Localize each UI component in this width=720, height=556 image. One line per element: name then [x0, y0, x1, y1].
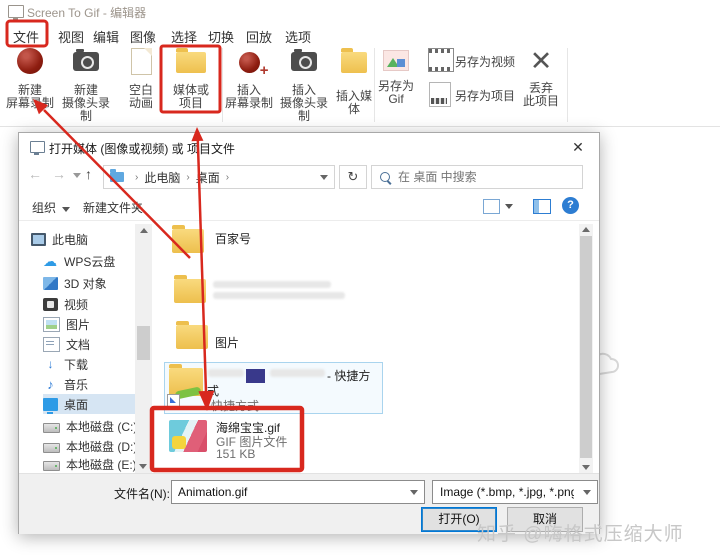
- shortcut-overlay-icon: [167, 394, 180, 407]
- new-webcam-button[interactable]: 新建摄像头录制: [58, 48, 114, 71]
- file-item-shortcut-selected[interactable]: - 快捷方 式 快捷方式: [164, 362, 383, 414]
- music-note-icon: ♪: [43, 378, 58, 391]
- sidebar-item-wps-cloud[interactable]: ☁WPS云盘: [43, 251, 115, 271]
- scrollbar-thumb[interactable]: [580, 236, 592, 458]
- save-as-video-button[interactable]: [428, 48, 452, 72]
- document-icon: [43, 337, 60, 352]
- organize-dropdown-icon: [62, 207, 70, 212]
- ribbon-separator: [222, 48, 223, 122]
- folder-icon[interactable]: [176, 325, 208, 349]
- sidebar-item-disk-d[interactable]: 本地磁盘 (D:): [43, 436, 137, 456]
- save-as-project-label[interactable]: 另存为项目: [455, 90, 517, 103]
- screentogif-app-icon: [8, 5, 24, 18]
- scroll-down-icon[interactable]: [139, 464, 147, 469]
- redacted-text: [213, 281, 331, 288]
- desktop-icon: [43, 398, 58, 411]
- watermark: 知乎 @嗨格式压缩大师: [477, 519, 684, 546]
- project-file-icon: [429, 82, 451, 107]
- scroll-down-icon[interactable]: [582, 465, 590, 470]
- up-icon[interactable]: ↑: [85, 166, 92, 182]
- redacted-block: [246, 369, 265, 383]
- refresh-button[interactable]: ↻: [339, 165, 367, 189]
- sidebar-item-this-pc[interactable]: 此电脑: [31, 229, 88, 249]
- menubar: 文件 视图 编辑 图像 选择 切换 回放 选项: [0, 22, 720, 46]
- redacted-text: [270, 369, 325, 377]
- sidebar-item-desktop[interactable]: 桌面: [43, 394, 139, 414]
- menu-image[interactable]: 图像: [130, 27, 156, 46]
- search-icon: [380, 172, 390, 182]
- ribbon: 新建屏幕录制 新建摄像头录制 空白动画 媒体或项目 插入屏幕录制 插入摄像头录制…: [0, 46, 720, 127]
- film-icon: [428, 48, 454, 72]
- media-folder-icon: [176, 52, 206, 73]
- sidebar-item-disk-e[interactable]: 本地磁盘 (E:): [43, 456, 137, 473]
- redacted-text: [208, 369, 244, 377]
- menu-options[interactable]: 选项: [285, 27, 311, 46]
- cloud-drive-icon: ☁: [43, 255, 58, 268]
- help-icon[interactable]: ?: [562, 197, 579, 214]
- insert-media-folder-icon: [341, 52, 367, 73]
- menu-edit[interactable]: 编辑: [93, 27, 119, 46]
- preview-pane-icon[interactable]: [533, 199, 551, 214]
- dialog-title: 打开媒体 (图像或视频) 或 项目文件: [49, 140, 235, 157]
- cube-icon: [43, 277, 58, 290]
- drive-icon: [43, 443, 60, 453]
- filetype-dropdown-icon[interactable]: [583, 490, 591, 495]
- webcam-icon: [73, 52, 99, 71]
- sidebar-item-downloads[interactable]: ↓下载: [43, 354, 88, 374]
- filename-label: 文件名(N):: [114, 485, 170, 502]
- discard-x-icon: ✕: [518, 48, 564, 75]
- record-plus-icon: [239, 52, 260, 73]
- menu-select[interactable]: 选择: [171, 27, 197, 46]
- video-icon: [43, 298, 58, 311]
- new-recording-button[interactable]: 新建屏幕录制: [3, 48, 57, 74]
- view-mode-icon[interactable]: [483, 199, 500, 214]
- window-title: Screen To Gif - 编辑器: [27, 4, 146, 21]
- ribbon-separator: [567, 48, 568, 122]
- history-dropdown-icon[interactable]: [73, 173, 81, 178]
- dialog-titlebar: 打开媒体 (图像或视频) 或 项目文件 ✕: [19, 133, 599, 161]
- address-bar[interactable]: › 此电脑 › 桌面 ›: [103, 165, 335, 189]
- dialog-close-icon[interactable]: ✕: [565, 137, 591, 157]
- insert-recording-button[interactable]: 插入屏幕录制: [225, 48, 273, 73]
- blank-page-icon: [131, 48, 152, 75]
- insert-media-button[interactable]: 插入媒体: [333, 48, 375, 73]
- scroll-up-icon[interactable]: [582, 227, 590, 232]
- sidebar-item-music[interactable]: ♪音乐: [43, 374, 88, 394]
- picture-icon: [43, 317, 60, 332]
- view-dropdown-icon[interactable]: [505, 204, 513, 209]
- organize-button[interactable]: 组织: [32, 199, 70, 216]
- open-media-dialog: 打开媒体 (图像或视频) 或 项目文件 ✕ ← → ↑ › 此电脑 › 桌面 ›…: [18, 132, 600, 534]
- filetype-combobox[interactable]: Image (*.bmp, *.jpg, *.png, *: [432, 480, 598, 504]
- filetype-value: Image (*.bmp, *.jpg, *.png, *: [433, 485, 574, 499]
- save-as-gif-button[interactable]: 另存为Gif: [376, 48, 416, 71]
- scroll-up-icon[interactable]: [140, 228, 148, 233]
- sidebar-item-documents[interactable]: 文档: [43, 334, 90, 354]
- address-folder-icon: [110, 172, 124, 182]
- sidebar-item-disk-c[interactable]: 本地磁盘 (C:): [43, 416, 137, 436]
- address-dropdown-icon[interactable]: [320, 175, 328, 180]
- filename-combobox[interactable]: [171, 480, 425, 504]
- save-as-video-label[interactable]: 另存为视频: [455, 56, 517, 69]
- file-item-pictures[interactable]: 图片: [215, 334, 239, 351]
- insert-webcam-button[interactable]: 插入摄像头录制: [276, 48, 332, 71]
- computer-icon: [31, 233, 46, 246]
- record-icon: [17, 48, 43, 74]
- media-or-project-button[interactable]: 媒体或项目: [163, 48, 219, 73]
- blank-animation-button[interactable]: 空白动画: [120, 48, 162, 75]
- folder-icon[interactable]: [174, 279, 206, 303]
- dialog-monitor-icon: [30, 141, 45, 153]
- gif-size: 151 KB: [216, 447, 255, 461]
- breadcrumb-this-pc[interactable]: 此电脑: [144, 169, 180, 186]
- drive-icon: [43, 461, 60, 471]
- folder-icon[interactable]: [172, 229, 204, 253]
- download-icon: ↓: [43, 358, 58, 371]
- dialog-navbar: ← → ↑ › 此电脑 › 桌面 › ↻: [19, 163, 599, 189]
- image-icon: [383, 50, 409, 71]
- filename-dropdown-icon[interactable]: [410, 490, 418, 495]
- save-as-project-button[interactable]: [428, 82, 452, 107]
- discard-project-button[interactable]: ✕ 丢弃此项目: [518, 48, 564, 75]
- menu-playback[interactable]: 回放: [246, 27, 272, 46]
- gif-thumbnail: [169, 420, 207, 452]
- redacted-text: [213, 292, 345, 299]
- dialog-command-bar: 组织 新建文件夹 ?: [19, 191, 599, 221]
- drive-icon: [43, 423, 60, 433]
- file-list-scrollbar[interactable]: [579, 224, 593, 473]
- search-box[interactable]: [371, 165, 583, 189]
- file-item-baijiahao[interactable]: 百家号: [215, 230, 251, 247]
- back-icon[interactable]: ←: [28, 166, 42, 182]
- titlebar: Screen To Gif - 编辑器: [0, 0, 720, 22]
- scrollbar-thumb[interactable]: [137, 326, 150, 360]
- sidebar-item-videos[interactable]: 视频: [43, 294, 88, 314]
- webcam-plus-icon: [291, 52, 317, 71]
- new-folder-button[interactable]: 新建文件夹: [83, 199, 143, 216]
- sidebar-item-pictures[interactable]: 图片: [43, 314, 90, 334]
- menu-file[interactable]: 文件: [13, 27, 39, 46]
- sidebar-scrollbar[interactable]: [135, 224, 152, 473]
- breadcrumb-desktop[interactable]: 桌面: [196, 169, 220, 186]
- forward-icon[interactable]: →: [52, 166, 66, 182]
- sidebar-item-3d-objects[interactable]: 3D 对象: [43, 273, 107, 293]
- menu-view[interactable]: 视图: [58, 27, 84, 46]
- filename-input[interactable]: [172, 484, 380, 500]
- search-input[interactable]: [396, 169, 570, 185]
- menu-transitions[interactable]: 切换: [208, 27, 234, 46]
